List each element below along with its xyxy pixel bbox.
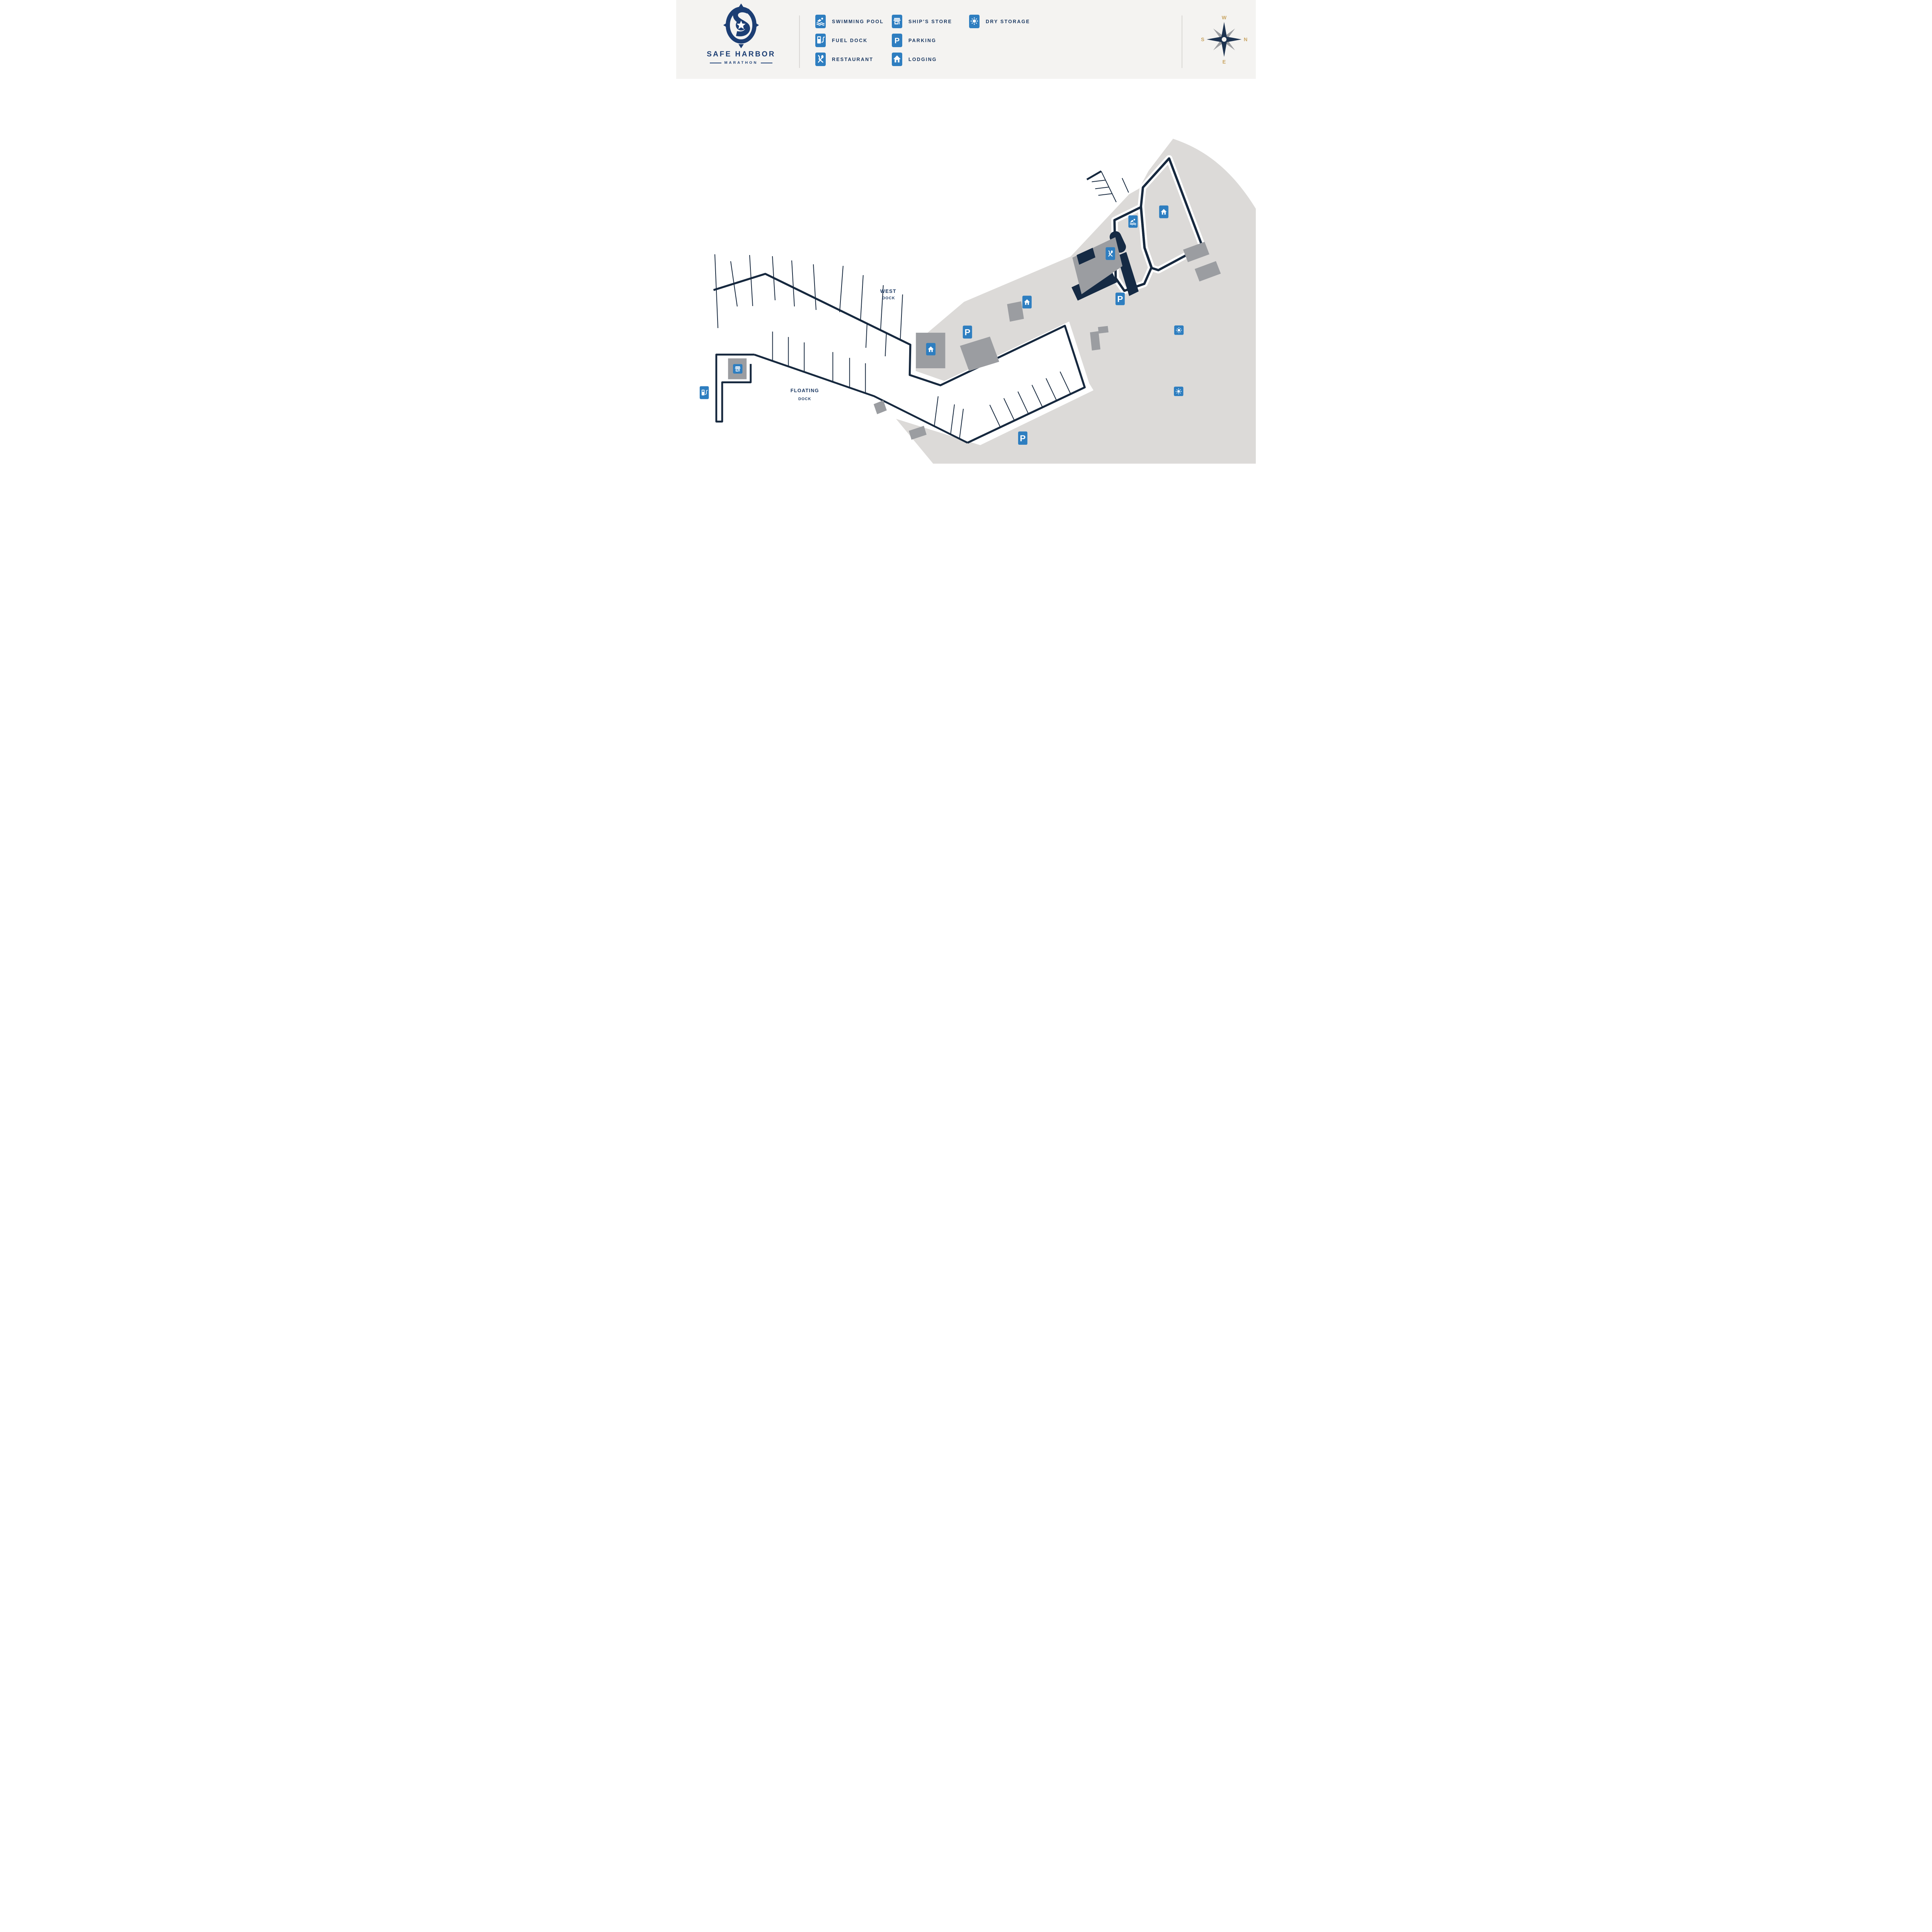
legend-item-ships-store: SHIP'S STORE [892, 15, 952, 28]
brand-subtitle: MARATHON [724, 61, 758, 65]
floating-dock-label: FLOATING [791, 388, 819, 393]
svg-text:P: P [1117, 294, 1123, 304]
north-dock [1087, 171, 1129, 202]
marker-parking-center[interactable]: P [963, 326, 972, 338]
brand-logo: SAFE HARBOR MARATHON [699, 3, 784, 65]
header-divider-left [799, 15, 800, 68]
brand-title: SAFE HARBOR [699, 50, 784, 59]
west-dock-label: WEST [880, 288, 896, 294]
ships-store-icon [892, 15, 902, 28]
marina-map[interactable]: WEST DOCK FLOATING DOCK P [676, 79, 1256, 464]
restaurant-icon [815, 53, 826, 66]
dry-storage-icon [969, 15, 980, 28]
header-divider-right [1182, 15, 1182, 68]
fuel-dock-icon [815, 34, 826, 47]
marina-map-page: SAFE HARBOR MARATHON SWIMMING POOL FUEL … [676, 0, 1256, 464]
small-square-building [1007, 301, 1024, 322]
svg-text:P: P [895, 37, 900, 45]
swimming-pool-icon [815, 15, 826, 28]
compass-letter-right: N [1244, 36, 1247, 42]
compass-rose: W N E S [1199, 14, 1250, 65]
marker-lodging-center[interactable] [1022, 296, 1032, 308]
svg-text:P: P [964, 328, 970, 337]
helm-logo-icon [721, 3, 761, 49]
marker-parking-south[interactable]: P [1018, 432, 1027, 445]
marker-restaurant[interactable] [1105, 247, 1115, 260]
legend-item-swimming-pool: SWIMMING POOL [815, 15, 884, 28]
west-dock-piers [715, 254, 903, 356]
header: SAFE HARBOR MARATHON SWIMMING POOL FUEL … [676, 0, 1256, 79]
legend-item-fuel-dock: FUEL DOCK [815, 34, 868, 47]
floating-dock-label-2: DOCK [798, 397, 811, 401]
legend-item-lodging: LODGING [892, 53, 937, 66]
marker-lodging-peninsula[interactable] [926, 343, 935, 355]
subtitle-dash-right [761, 63, 772, 63]
svg-text:P: P [1020, 434, 1026, 443]
marker-lodging-northeast[interactable] [1159, 206, 1168, 218]
compass-letter-bottom: E [1223, 59, 1226, 65]
compass-letter-left: S [1201, 36, 1204, 42]
lodging-icon [892, 53, 902, 66]
land-mass [896, 139, 1256, 464]
marker-parking-west[interactable]: P [1116, 293, 1125, 305]
legend-item-dry-storage: DRY STORAGE [969, 15, 1030, 28]
marker-ships-store[interactable] [733, 364, 742, 374]
west-dock-label-2: DOCK [882, 296, 895, 300]
parking-icon: P [892, 34, 902, 47]
marker-fuel-dock[interactable] [700, 386, 709, 399]
l-building-2 [1098, 326, 1108, 333]
marker-dry-storage-south[interactable] [1174, 387, 1183, 396]
map-area: WEST DOCK FLOATING DOCK P [676, 79, 1256, 464]
legend-item-parking: P PARKING [892, 34, 936, 47]
brand-subtitle-row: MARATHON [699, 61, 784, 65]
legend: SWIMMING POOL FUEL DOCK RESTAURANT SHIP'… [812, 0, 1160, 79]
compass-letter-top: W [1222, 15, 1227, 20]
marker-swimming-pool[interactable] [1128, 215, 1138, 228]
dock-labels: WEST DOCK FLOATING DOCK [791, 288, 896, 401]
legend-item-restaurant: RESTAURANT [815, 53, 873, 66]
subtitle-dash-left [710, 63, 721, 63]
marker-dry-storage-north[interactable] [1174, 325, 1184, 335]
